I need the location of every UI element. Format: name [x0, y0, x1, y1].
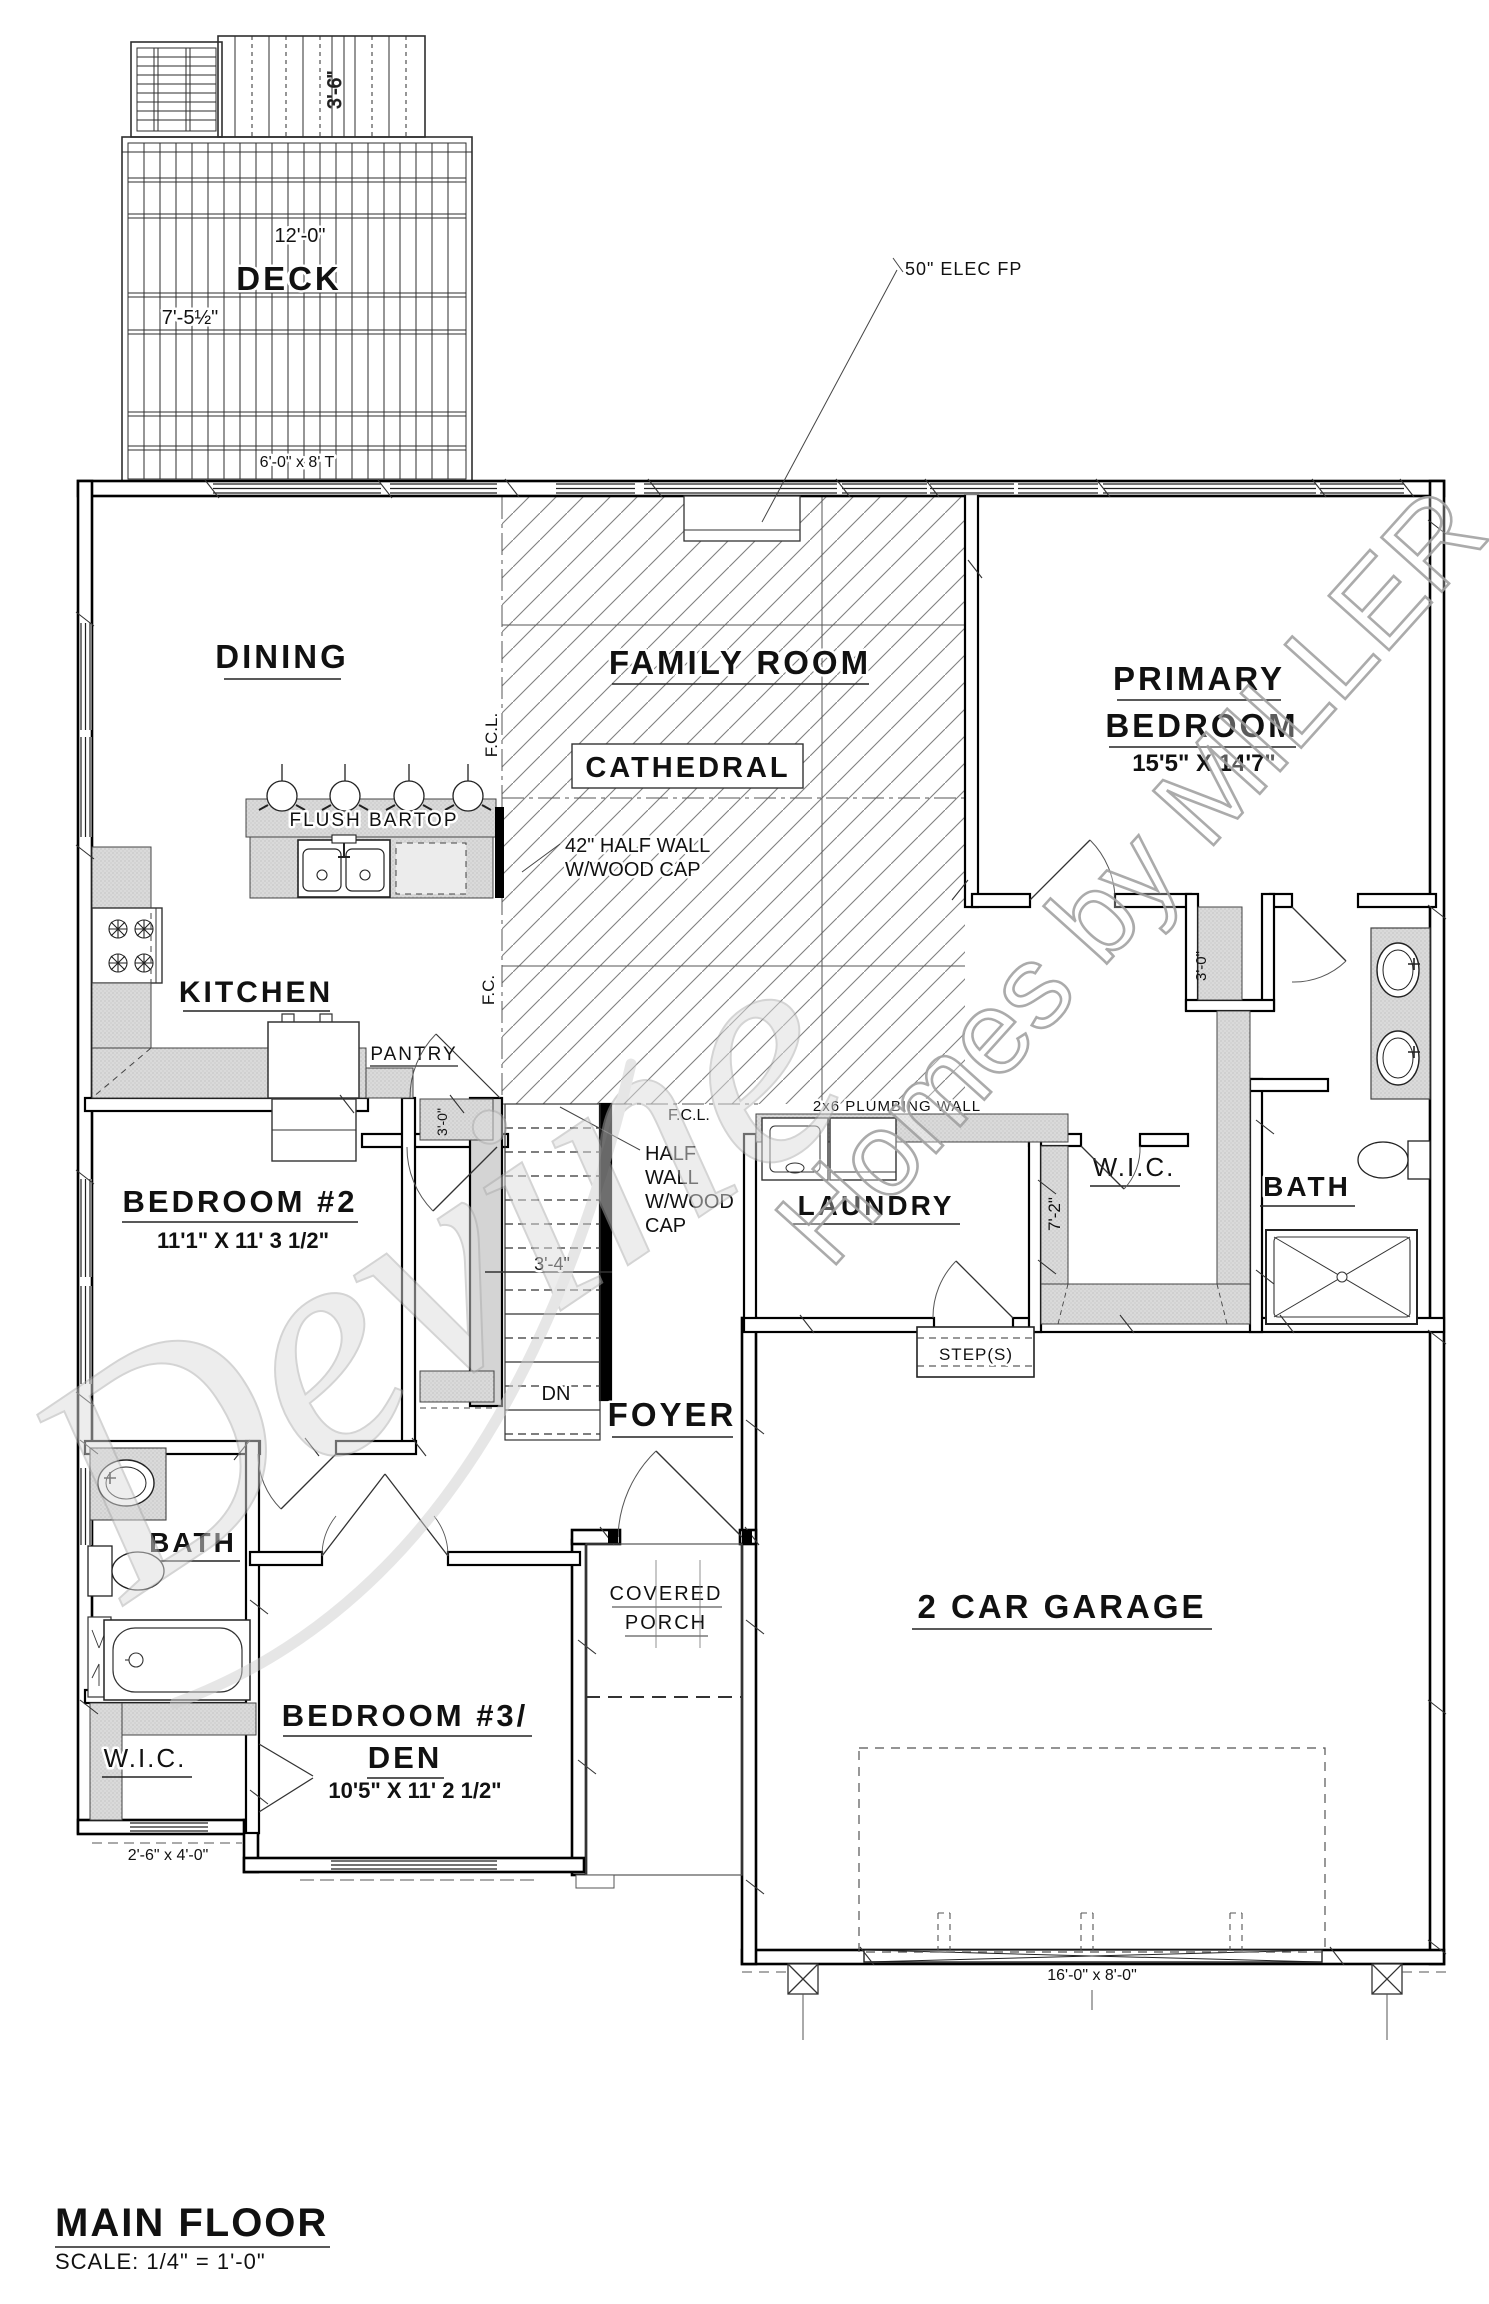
svg-text:CATHEDRAL: CATHEDRAL [585, 752, 790, 784]
svg-text:7'-5½": 7'-5½" [162, 307, 219, 329]
svg-text:10'5" X 11' 2 1/2": 10'5" X 11' 2 1/2" [328, 1778, 501, 1803]
svg-text:STEP(S): STEP(S) [939, 1345, 1013, 1364]
svg-text:12'-0": 12'-0" [275, 225, 326, 247]
svg-text:DECK: DECK [236, 260, 342, 297]
svg-text:42" HALF WALL: 42" HALF WALL [565, 835, 710, 857]
svg-text:SCALE: 1/4" = 1'-0": SCALE: 1/4" = 1'-0" [55, 2249, 266, 2274]
svg-text:F.C.: F.C. [479, 975, 498, 1005]
svg-text:DEN: DEN [368, 1740, 442, 1775]
svg-text:3'-6": 3'-6" [325, 71, 346, 109]
svg-text:W.I.C.: W.I.C. [104, 1743, 187, 1773]
svg-text:COVERED: COVERED [610, 1583, 723, 1605]
svg-text:FLUSH BARTOP: FLUSH BARTOP [289, 810, 458, 831]
svg-text:7'-2": 7'-2" [1045, 1197, 1064, 1231]
svg-text:KITCHEN: KITCHEN [179, 976, 333, 1009]
svg-text:DINING: DINING [215, 638, 349, 675]
svg-text:6'-0" x 8' T: 6'-0" x 8' T [260, 454, 335, 471]
svg-text:BEDROOM #3/: BEDROOM #3/ [282, 1698, 529, 1733]
svg-text:2 CAR GARAGE: 2 CAR GARAGE [917, 1588, 1206, 1625]
svg-text:2'-6" x 4'-0": 2'-6" x 4'-0" [128, 1847, 209, 1864]
svg-text:W/WOOD CAP: W/WOOD CAP [565, 859, 701, 881]
svg-text:3'-0": 3'-0" [1193, 951, 1210, 981]
svg-text:FAMILY ROOM: FAMILY ROOM [609, 644, 871, 681]
svg-text:50" ELEC FP: 50" ELEC FP [905, 259, 1022, 279]
svg-text:MAIN FLOOR: MAIN FLOOR [55, 2201, 328, 2245]
svg-text:FOYER: FOYER [608, 1396, 737, 1433]
svg-text:F.C.L.: F.C.L. [482, 713, 501, 757]
svg-text:16'-0" x 8'-0": 16'-0" x 8'-0" [1047, 1967, 1137, 1984]
svg-text:PORCH: PORCH [625, 1612, 707, 1634]
svg-text:W.I.C.: W.I.C. [1093, 1152, 1176, 1182]
svg-text:BATH: BATH [1263, 1171, 1351, 1202]
